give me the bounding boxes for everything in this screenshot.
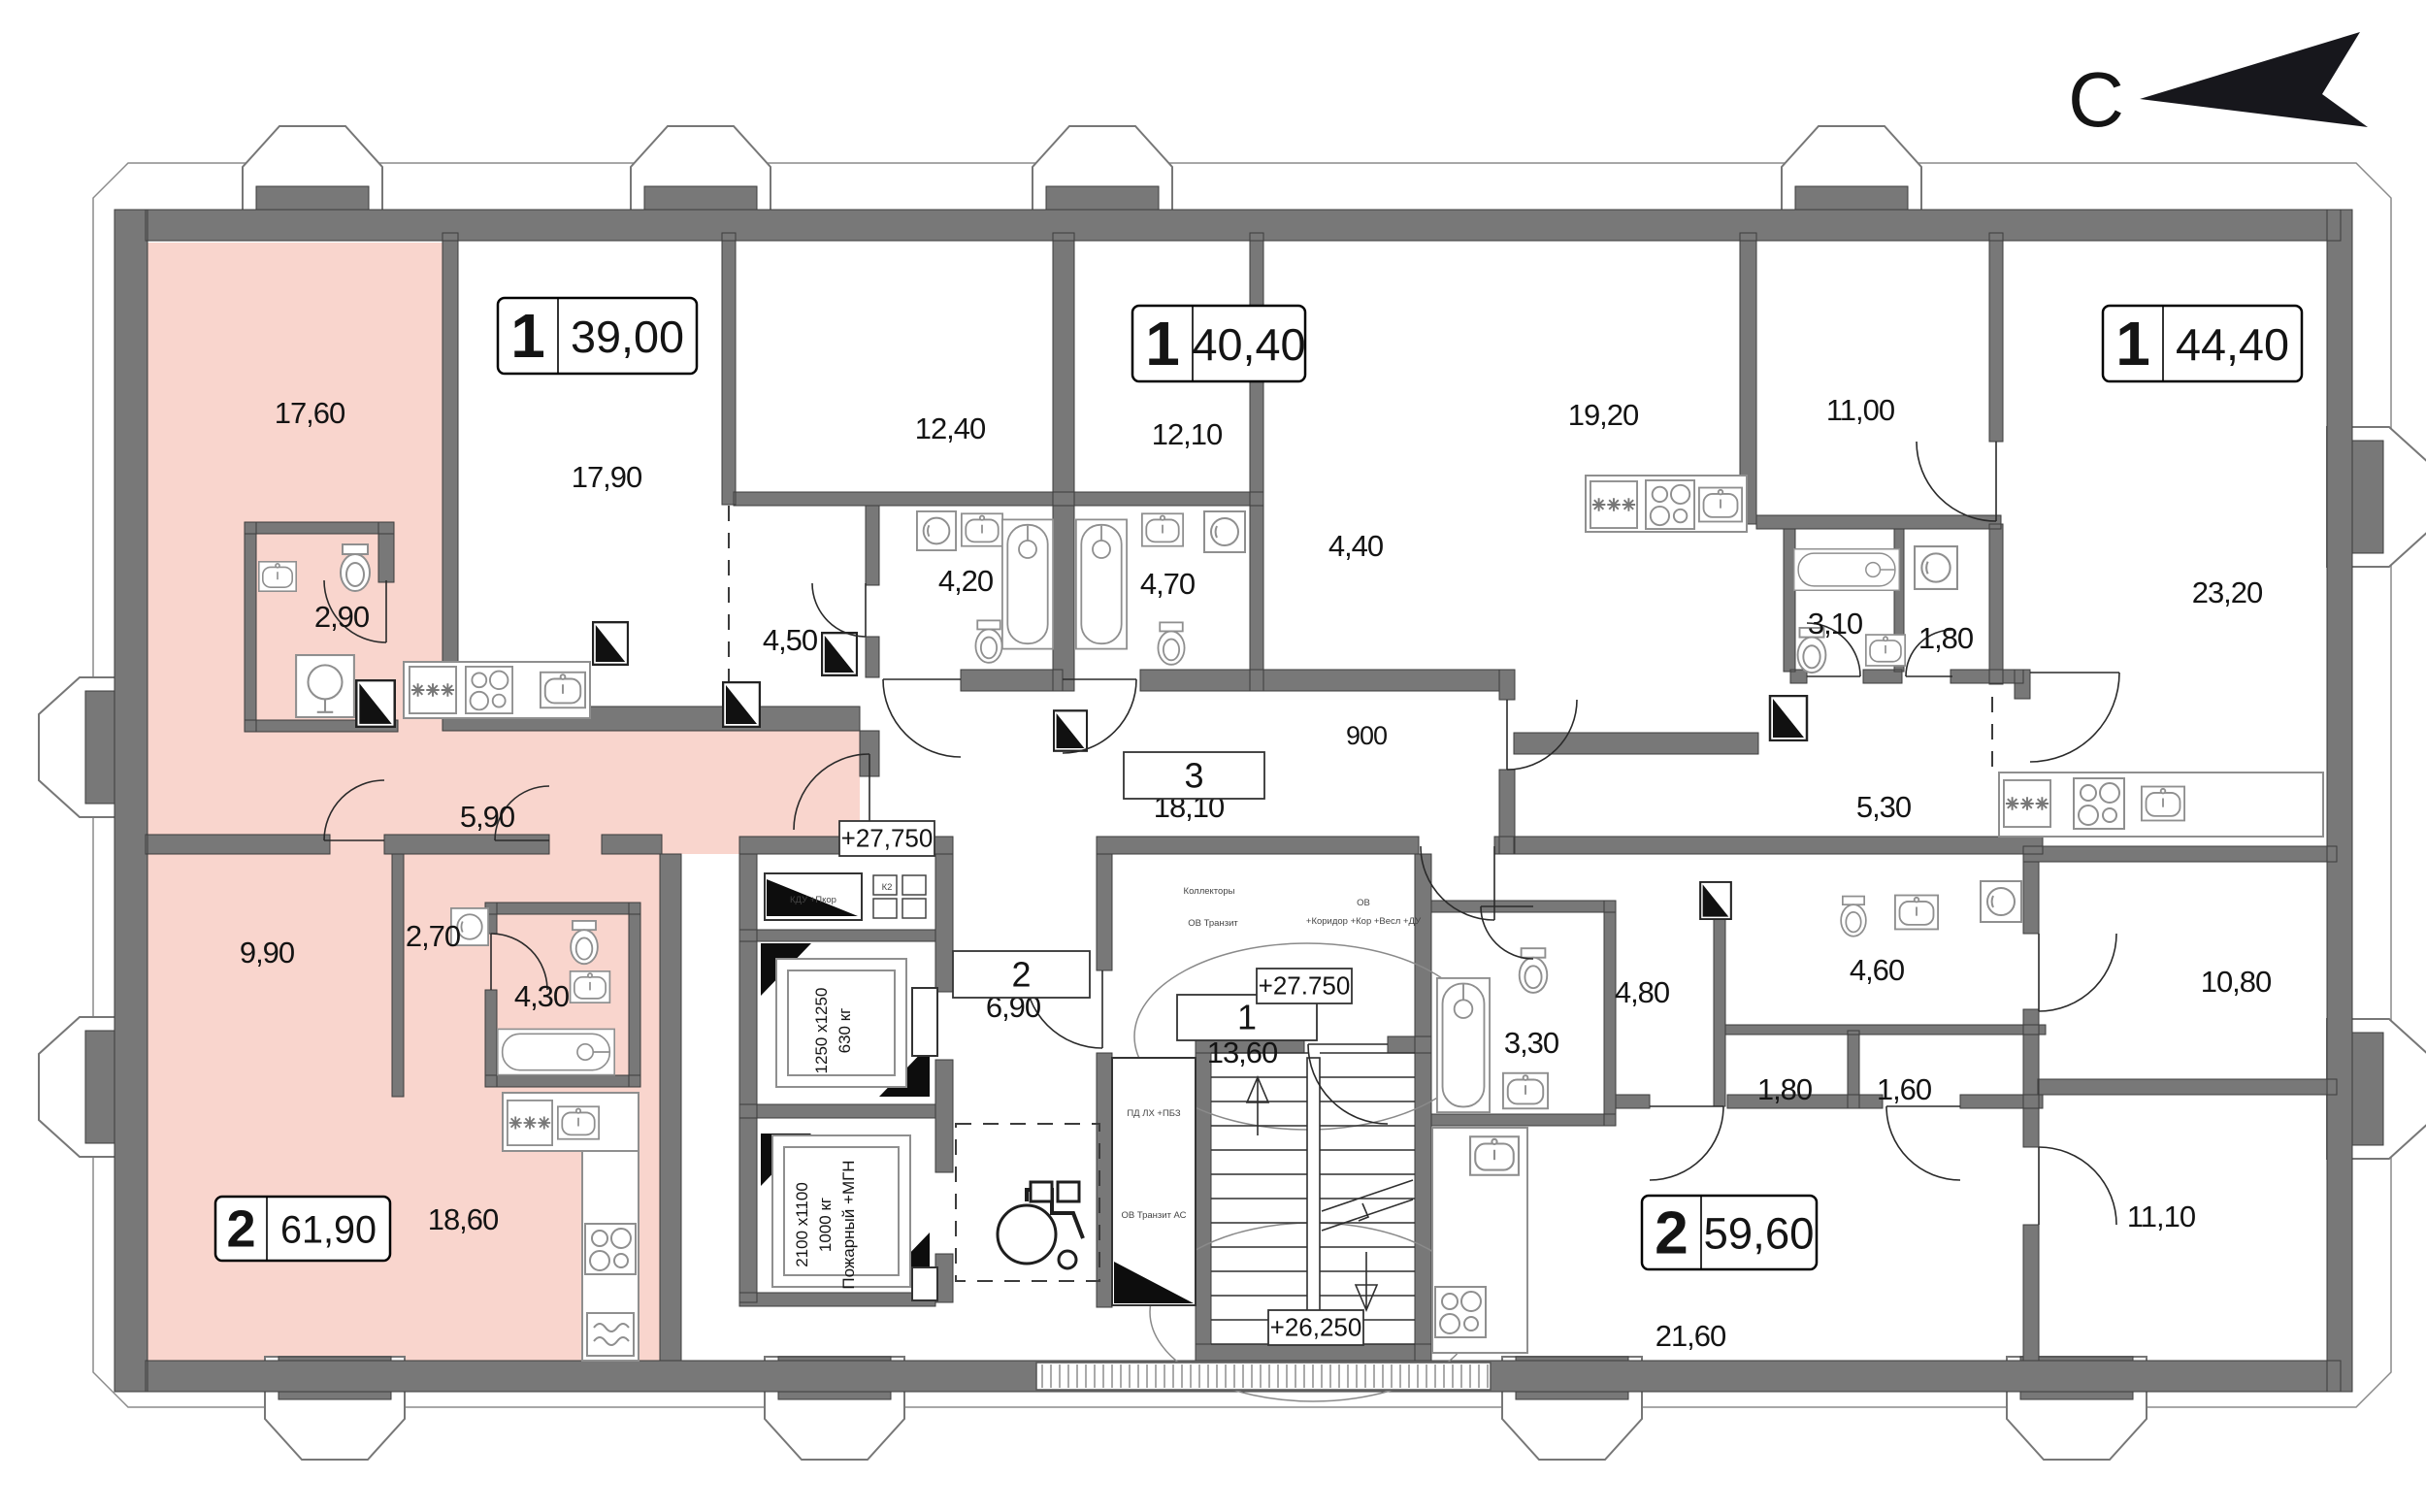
- washing-machine-icon: [1981, 881, 2021, 922]
- elevator-spec-line: 630 кг: [836, 1008, 854, 1054]
- tech-label: КДУ +Пкор: [790, 895, 836, 905]
- toilet-icon: [341, 544, 370, 591]
- apartment-area: 40,40: [1192, 319, 1305, 370]
- door-swing-arc: [1886, 1106, 1960, 1180]
- room-area-label: 11,10: [2127, 1200, 2196, 1233]
- tech-label: ОВ Транзит АС: [1121, 1210, 1186, 1221]
- north-arrow-icon: [2140, 32, 2368, 127]
- room-area-label: 9,90: [240, 936, 295, 970]
- door-swing-arc: [2039, 934, 2116, 1011]
- sink-icon: [1503, 1073, 1548, 1108]
- elevator-spec-line: 1250 x1250: [812, 988, 831, 1074]
- room-area-label: 23,20: [2192, 575, 2263, 609]
- room-area-label: 1,80: [1757, 1072, 1813, 1106]
- tech-label: Коллекторы: [1184, 886, 1235, 897]
- toilet-icon: [1158, 622, 1184, 664]
- bathtub-icon: [1794, 549, 1900, 591]
- apartment-rooms-count: 2: [1655, 1200, 1688, 1266]
- kitchen-sink-icon: [541, 673, 585, 707]
- bathtub-icon: [498, 1029, 614, 1074]
- room-area-label: 11,00: [1826, 393, 1895, 427]
- tech-label: ОВ: [1357, 898, 1370, 908]
- stove-icon: [2074, 778, 2124, 829]
- common-area-number: 1: [1237, 998, 1257, 1037]
- room-area-label: 2,90: [314, 600, 370, 634]
- room-area-label: 5,90: [460, 800, 515, 834]
- apartment-rooms-count: 1: [510, 301, 545, 371]
- room-area-label: 4,60: [1850, 953, 1905, 987]
- room-area-label: 4,70: [1140, 567, 1196, 601]
- elevator-door-fire: [912, 1267, 937, 1300]
- room-area-label: 18,60: [428, 1202, 499, 1236]
- elevator-spec-line: Пожарный +МГН: [839, 1160, 858, 1289]
- washing-machine-icon: [1204, 511, 1245, 552]
- north-indicator: С: [2068, 32, 2368, 143]
- room-area-label: 19,20: [1568, 398, 1639, 432]
- kitchen-sink-icon: [558, 1106, 599, 1138]
- toilet-icon: [975, 620, 1001, 662]
- sink-icon: [259, 562, 296, 591]
- door-swing-arc: [2030, 673, 2119, 762]
- door-swing-arc: [1917, 442, 1996, 521]
- elevator-spec-line: 1000 кг: [816, 1198, 835, 1252]
- room-area-label: 3,30: [1504, 1026, 1559, 1060]
- room-area-label: 12,40: [915, 411, 986, 445]
- elevator-spec-line: 2100 x1100: [793, 1182, 811, 1267]
- floor-plan-drawing: 17,602,905,909,902,704,3018,6017,904,501…: [0, 0, 2426, 1512]
- washing-machine-icon: [917, 511, 956, 550]
- sink-icon: [1866, 635, 1905, 666]
- fridge-icon: [410, 667, 456, 713]
- common-area-number: 2: [1011, 954, 1031, 994]
- room-area-label: 12,10: [1152, 417, 1223, 451]
- bathtub-icon: [1076, 519, 1127, 648]
- level-mark: +27,750: [841, 824, 934, 853]
- apartment-area: 44,40: [2176, 319, 2289, 370]
- room-area-label: 17,60: [275, 396, 345, 430]
- room-area-label: 21,60: [1656, 1319, 1726, 1353]
- room-area-label: 5,30: [1856, 790, 1912, 824]
- sink-icon: [962, 513, 1002, 545]
- kitchen-sink-icon: [1699, 488, 1742, 522]
- dimension-label: 900: [1346, 721, 1387, 750]
- apartment-rooms-count: 1: [1145, 309, 1180, 378]
- apartment-rooms-count: 2: [226, 1200, 255, 1258]
- room-area-label: 4,20: [938, 564, 994, 598]
- room-area-label: 2,70: [406, 919, 461, 953]
- kitchen-sink-icon: [2142, 787, 2184, 821]
- stove-icon: [1435, 1287, 1486, 1337]
- door-swing-arc: [812, 583, 866, 637]
- room-area-label: 4,30: [514, 979, 570, 1013]
- fridge-icon: [1590, 481, 1637, 528]
- stair-stringer: [1307, 1058, 1320, 1341]
- dimension-labels: 900: [1346, 721, 1387, 750]
- stove-icon: [1646, 480, 1694, 529]
- apartment-area: 39,00: [571, 312, 684, 362]
- room-area-label: 4,50: [763, 623, 818, 657]
- apartment-area: 59,60: [1703, 1209, 1814, 1259]
- tech-label: +Коридор +Кор +Весл +ДУ: [1306, 916, 1422, 927]
- level-mark: +26,250: [1270, 1313, 1362, 1342]
- stove-icon: [466, 667, 512, 713]
- room-area-label: 4,80: [1615, 975, 1670, 1009]
- bottom-balcony-hatch: [1036, 1363, 1491, 1390]
- fridge-icon: [508, 1101, 552, 1145]
- tech-label: ПД ЛХ +ПБЗ: [1127, 1108, 1181, 1119]
- door-swing-arc: [1650, 1106, 1723, 1180]
- sink-icon: [1142, 513, 1183, 545]
- toilet-icon: [1520, 948, 1548, 993]
- north-label: С: [2068, 56, 2124, 143]
- tech-label: К2: [882, 882, 893, 893]
- stair-arrow-down: [1356, 1252, 1377, 1310]
- toilet-icon: [1841, 897, 1866, 937]
- elevator-door-passenger: [912, 988, 937, 1056]
- room-area-label: 4,40: [1328, 529, 1384, 563]
- room-area-label: 1,60: [1877, 1072, 1932, 1106]
- sink-icon: [1895, 896, 1938, 930]
- common-area-number: 3: [1184, 755, 1203, 795]
- apartment-rooms-count: 1: [2115, 309, 2150, 378]
- door-swing-arc: [2039, 1147, 2116, 1225]
- toilet-icon: [571, 921, 598, 964]
- door-swing-arc: [883, 679, 961, 757]
- bathtub-icon: [1002, 519, 1053, 648]
- wheelchair-icon: [998, 1182, 1083, 1268]
- radiator-icon: [587, 1313, 634, 1356]
- tech-label: ОВ Транзит: [1188, 918, 1238, 929]
- sink-icon: [571, 971, 610, 1003]
- shower-icon: [296, 655, 354, 717]
- apartment-area: 61,90: [280, 1209, 377, 1252]
- room-area-label: 3,10: [1808, 607, 1863, 641]
- stove-icon: [585, 1224, 636, 1274]
- fridge-icon: [2004, 780, 2050, 827]
- floor-plan-canvas: 17,602,905,909,902,704,3018,6017,904,501…: [0, 0, 2426, 1512]
- washing-machine-icon: [1915, 546, 1957, 589]
- kitchen-sink-icon: [1470, 1136, 1519, 1175]
- room-area-label: 1,80: [1918, 621, 1974, 655]
- room-area-label: 17,90: [572, 460, 642, 494]
- room-area-label: 10,80: [2201, 965, 2272, 999]
- bathtub-icon: [1437, 978, 1490, 1112]
- level-mark: +27.750: [1259, 971, 1351, 1001]
